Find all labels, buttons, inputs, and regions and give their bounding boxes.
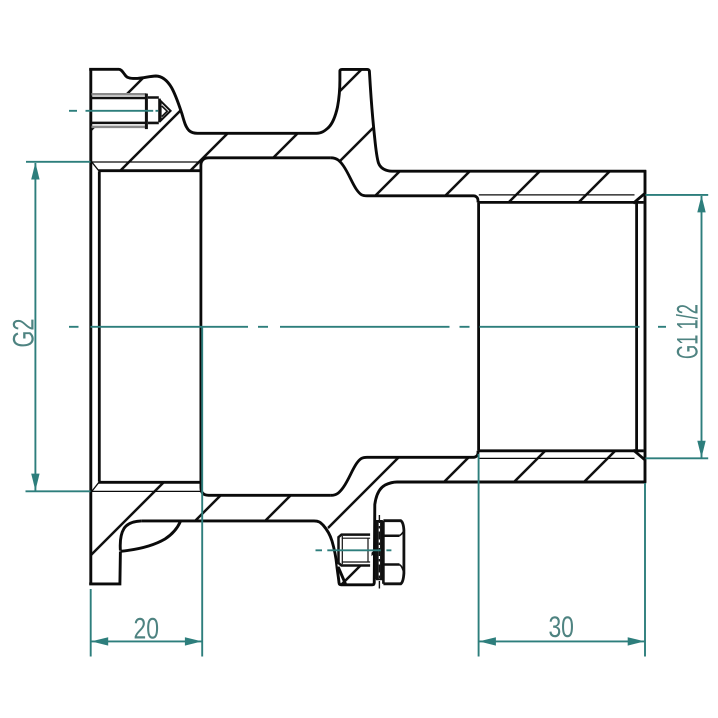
svg-text:30: 30 bbox=[548, 611, 574, 644]
svg-text:20: 20 bbox=[134, 612, 160, 645]
svg-text:G1 1/2: G1 1/2 bbox=[672, 304, 705, 359]
svg-text:G2: G2 bbox=[8, 319, 41, 348]
